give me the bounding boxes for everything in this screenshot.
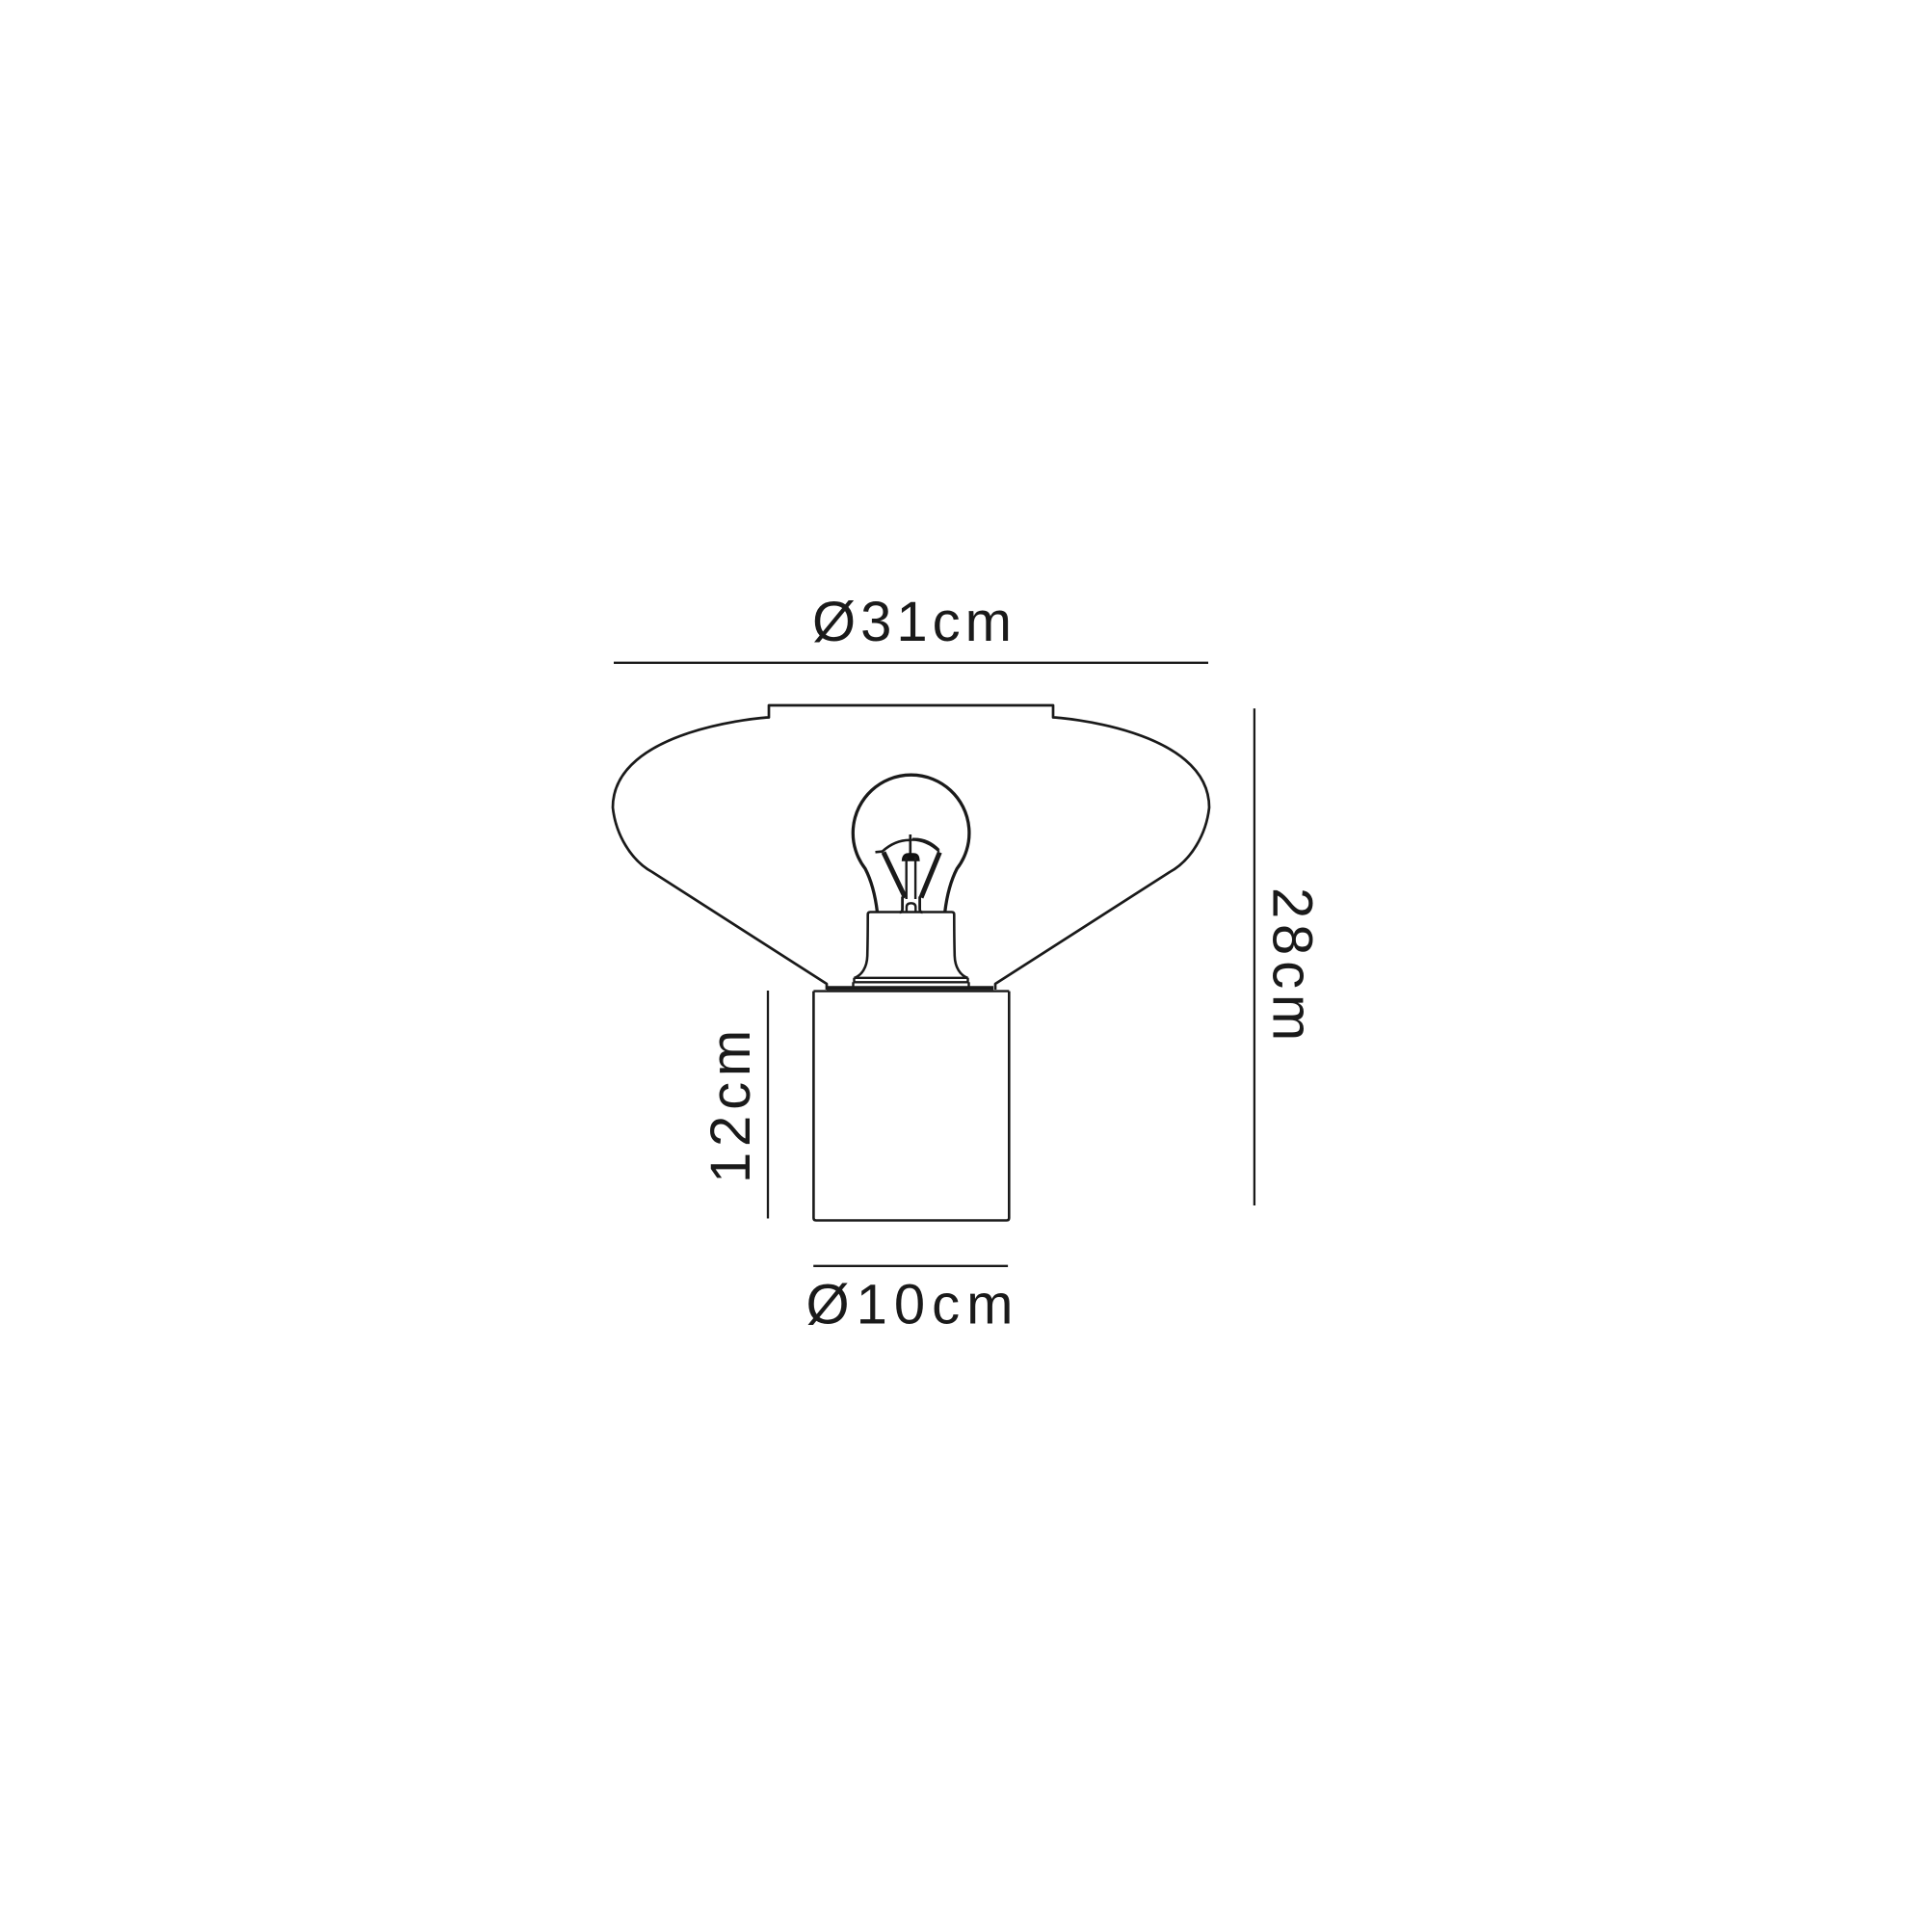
svg-text:28cm: 28cm [1260, 887, 1323, 1046]
svg-text:Ø10cm: Ø10cm [806, 1274, 1020, 1337]
svg-text:12cm: 12cm [700, 1024, 762, 1183]
svg-text:Ø31cm: Ø31cm [812, 591, 1016, 653]
